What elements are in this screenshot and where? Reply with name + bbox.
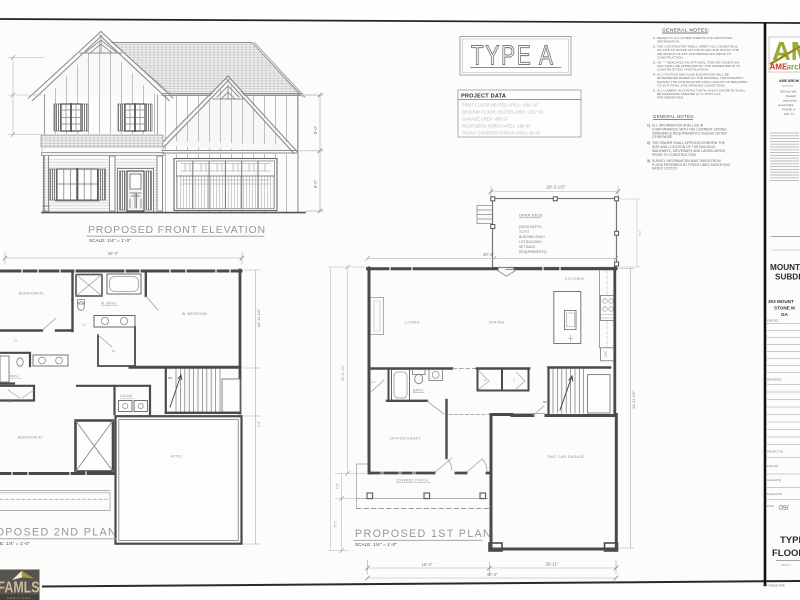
svg-text:OPEN DECK: OPEN DECK bbox=[519, 214, 543, 218]
svg-text:FRONT COVERED PORCH AREA: 96 S: FRONT COVERED PORCH AREA: 96 SF bbox=[462, 131, 541, 136]
svg-text:20'-3 1/2": 20'-3 1/2" bbox=[546, 185, 566, 190]
svg-text:SECOND FLOOR HEATED AREA: 1157: SECOND FLOOR HEATED AREA: 1157 SF bbox=[462, 110, 544, 115]
svg-text:DN: DN bbox=[168, 376, 172, 380]
svg-text:archi: archi bbox=[787, 63, 800, 72]
svg-text:LOT BUILDING: LOT BUILDING bbox=[519, 240, 542, 244]
svg-text:TWO CAR GARAGE: TWO CAR GARAGE bbox=[547, 455, 585, 459]
svg-text:SET BACK: SET BACK bbox=[519, 245, 536, 249]
svg-text:40'-3": 40'-3" bbox=[483, 252, 494, 257]
svg-text:BATH: BATH bbox=[413, 389, 423, 393]
svg-text:2): 2) bbox=[647, 141, 650, 145]
svg-text:AME ARCHI: AME ARCHI bbox=[779, 79, 799, 83]
svg-text:DATE: DATE bbox=[767, 504, 774, 508]
svg-text:CL: CL bbox=[8, 400, 12, 404]
svg-text:W. BATH: W. BATH bbox=[101, 302, 116, 306]
svg-text:REVISIONS: REVISIONS bbox=[767, 378, 781, 382]
svg-text:FIRST FLOOR HEATED AREA: 1091: FIRST FLOOR HEATED AREA: 1091 SF bbox=[462, 103, 538, 108]
svg-text:PRIOR TO CONSTRUCTION.: PRIOR TO CONSTRUCTION. bbox=[652, 153, 697, 157]
svg-text:MOUNTA: MOUNTA bbox=[770, 263, 800, 272]
svg-text:SCALE: 1/4" = 1'-0": SCALE: 1/4" = 1'-0" bbox=[355, 542, 397, 547]
svg-text:amearch@a: amearch@a bbox=[778, 103, 794, 107]
svg-text:DATED 12/27/21: DATED 12/27/21 bbox=[652, 167, 677, 171]
svg-text:CONSTRUCTION / INSTALLATION.: CONSTRUCTION / INSTALLATION. bbox=[657, 68, 709, 72]
svg-text:E: 1/4" = 1'-0": E: 1/4" = 1'-0" bbox=[0, 541, 30, 546]
svg-text:FLOOR: FLOOR bbox=[772, 548, 800, 559]
svg-text:300 Gue Vall: 300 Gue Vall bbox=[780, 90, 796, 94]
svg-text:KITCHEN: KITCHEN bbox=[565, 277, 584, 281]
svg-text:P: P bbox=[484, 379, 486, 383]
svg-text:INFORMATION.: INFORMATION. bbox=[657, 40, 680, 44]
svg-text:8'-1": 8'-1" bbox=[334, 521, 338, 527]
svg-text:PHONE: 4: PHONE: 4 bbox=[782, 108, 796, 112]
svg-text:20'-11": 20'-11" bbox=[546, 562, 559, 567]
svg-text:Sheet N: Sheet N bbox=[781, 563, 790, 567]
svg-text:TO SUIT FINAL SITE GRADING CON: TO SUIT FINAL SITE GRADING CONDITIONS. bbox=[657, 83, 726, 87]
svg-text:COVERED PORCH: COVERED PORCH bbox=[396, 479, 428, 483]
svg-text:1.: 1. bbox=[653, 36, 656, 40]
svg-text:Drawing Title: Drawing Title bbox=[767, 492, 783, 496]
svg-text:AME: AME bbox=[770, 63, 788, 72]
svg-text:LIVING: LIVING bbox=[405, 321, 420, 325]
svg-text:CL.: CL. bbox=[372, 380, 378, 384]
svg-text:TYPE A: TYPE A bbox=[471, 41, 555, 72]
svg-text:CL: CL bbox=[112, 349, 116, 353]
svg-text:Roswell: Roswell bbox=[786, 94, 796, 98]
svg-text:2.: 2. bbox=[653, 45, 656, 49]
svg-text:5.: 5. bbox=[653, 88, 656, 92]
svg-text:OTHERWISE.: OTHERWISE. bbox=[652, 135, 673, 139]
svg-text:32'-10 1/2": 32'-10 1/2" bbox=[341, 364, 345, 381]
svg-text:REAR DECK PORCH AREA: 160 SF: REAR DECK PORCH AREA: 160 SF bbox=[462, 124, 531, 129]
svg-text:CL: CL bbox=[82, 323, 86, 327]
svg-text:PRESERVATIVES.: PRESERVATIVES. bbox=[657, 96, 684, 100]
svg-text:4'-6": 4'-6" bbox=[257, 421, 261, 427]
svg-text:FAMLS: FAMLS bbox=[0, 580, 40, 597]
svg-text:SERVICES: SERVICES bbox=[7, 596, 32, 600]
svg-text:BATH: BATH bbox=[10, 374, 18, 378]
svg-text:CONSTRUCTION.: CONSTRUCTION. bbox=[657, 55, 684, 59]
svg-text:SCALE: 1/4" = 1'-0": SCALE: 1/4" = 1'-0" bbox=[89, 238, 131, 243]
svg-text:Checked By: Checked By bbox=[767, 478, 782, 482]
svg-text:REQUIREMENTS): REQUIREMENTS) bbox=[519, 250, 547, 254]
svg-text:BUILDING EACH: BUILDING EACH bbox=[519, 235, 545, 239]
svg-text:OFFICE/GUEST: OFFICE/GUEST bbox=[390, 437, 421, 441]
svg-text:44'-11 1/2": 44'-11 1/2" bbox=[631, 390, 636, 409]
svg-text:9'-0": 9'-0" bbox=[313, 179, 318, 188]
svg-text:PROPOSED FRONT ELEVATION: PROPOSED FRONT ELEVATION bbox=[88, 224, 266, 236]
svg-text:PROJECT DATA: PROJECT DATA bbox=[461, 94, 506, 100]
svg-text:PRINTED: PRINTED bbox=[767, 319, 779, 323]
svg-text:NOT ISSUE FOR: NOT ISSUE FOR bbox=[763, 584, 785, 588]
svg-text:BEDROOM #2: BEDROOM #2 bbox=[18, 436, 43, 440]
svg-text:TO FIT: TO FIT bbox=[519, 230, 529, 234]
svg-text:40'-3": 40'-3" bbox=[487, 572, 498, 577]
svg-text:PROPOSED 1ST PLAN: PROPOSED 1ST PLAN bbox=[355, 528, 492, 540]
svg-text:GA: GA bbox=[781, 312, 789, 317]
svg-text:09/: 09/ bbox=[779, 505, 789, 512]
svg-text:(DECK DEPTH-: (DECK DEPTH- bbox=[519, 225, 542, 229]
svg-text:PROPOSED 2ND PLAN: PROPOSED 2ND PLAN bbox=[0, 527, 117, 539]
svg-text:15'-4": 15'-4" bbox=[422, 562, 433, 567]
svg-text:40'-3": 40'-3" bbox=[108, 251, 119, 256]
svg-text:ATTIC: ATTIC bbox=[171, 455, 182, 459]
svg-text:W. BEDROOM: W. BEDROOM bbox=[182, 312, 207, 316]
svg-text:GENERAL NOTES:: GENERAL NOTES: bbox=[653, 114, 695, 119]
svg-text:BEDROOM #3: BEDROOM #3 bbox=[19, 292, 44, 296]
svg-text:4'-0": 4'-0" bbox=[336, 483, 340, 489]
svg-text:LAUND: LAUND bbox=[120, 394, 133, 398]
svg-text:FAX: 47: FAX: 47 bbox=[784, 112, 794, 116]
svg-text:PROJECT No.: PROJECT No. bbox=[767, 450, 784, 454]
svg-text:GARAGE AREA: 436 SF: GARAGE AREA: 436 SF bbox=[462, 117, 509, 122]
svg-text:architectu: architectu bbox=[782, 84, 794, 88]
svg-text:3.: 3. bbox=[653, 60, 656, 64]
svg-text:STONE M: STONE M bbox=[774, 306, 795, 311]
svg-text:Drawn By: Drawn By bbox=[767, 464, 779, 468]
svg-text:TYPE: TYPE bbox=[780, 535, 800, 546]
svg-text:GENERAL NOTES:: GENERAL NOTES: bbox=[662, 28, 710, 34]
svg-text:www.amea: www.amea bbox=[783, 99, 797, 103]
svg-text:303 MOUNT: 303 MOUNT bbox=[768, 299, 794, 304]
svg-text:4.: 4. bbox=[653, 73, 656, 77]
svg-text:9'-0": 9'-0" bbox=[313, 125, 318, 134]
svg-text:1): 1) bbox=[647, 124, 650, 128]
svg-text:3): 3) bbox=[647, 159, 650, 163]
svg-text:SUBDI: SUBDI bbox=[775, 273, 800, 282]
svg-text:DINING: DINING bbox=[489, 321, 505, 325]
svg-text:8'-0": 8'-0" bbox=[638, 230, 642, 236]
svg-text:44'-11 1/2": 44'-11 1/2" bbox=[256, 308, 261, 327]
svg-text:CL: CL bbox=[14, 339, 18, 343]
